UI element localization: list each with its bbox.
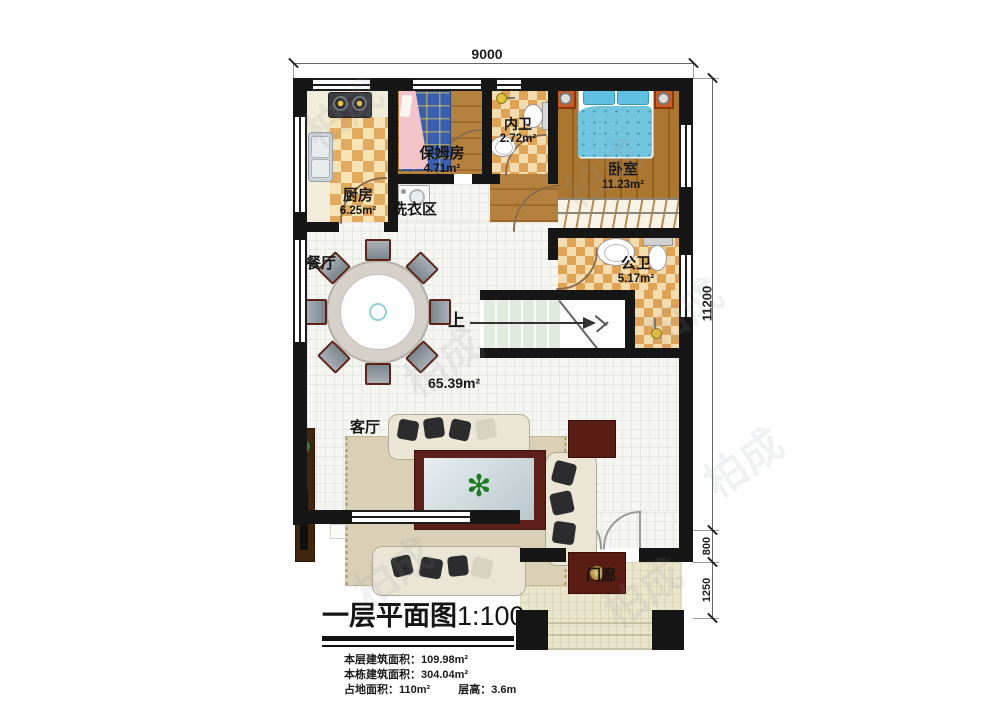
sofa-top-pillow-2 (423, 417, 446, 440)
nanny-room-area: 4.71m² (404, 163, 480, 176)
public-bath-light (651, 328, 662, 339)
stairs-up-label: 上 (448, 311, 465, 330)
kitchen-name: 厨房 (326, 188, 390, 205)
plan-title-scale: 1:100 (457, 601, 525, 631)
title-block: 一层平面图1:100 本层建筑面积：109.98m² 本栋建筑面积：304.04… (322, 594, 525, 698)
stats-lines: 本层建筑面积：109.98m² 本栋建筑面积：304.04m² 占地面积：110… (344, 653, 525, 698)
wall-stairs-top (480, 290, 635, 300)
porch-pillar-right (652, 610, 684, 650)
bedroom-pillow-right (617, 90, 649, 105)
sofa-right-pillow-2 (549, 490, 575, 516)
inner-bath-light (496, 93, 507, 104)
living-label: 客厅 (350, 420, 380, 437)
stairs-arrow-head (583, 317, 596, 329)
stat-floor-area-value: 109.98m² (421, 654, 468, 666)
dining-label: 餐厅 (306, 256, 336, 273)
wall-bath-top (548, 228, 693, 238)
window-nanny-top (413, 78, 481, 91)
wall-kitchen-bottom-b (384, 222, 398, 232)
window-dining-left (293, 240, 307, 342)
sofa-top-pillow-4 (474, 417, 497, 440)
wardrobe-rail (558, 212, 679, 214)
kitchen-sink-basin-2 (311, 159, 330, 178)
wall-porch-right-stub (639, 548, 682, 562)
window-kitchen-top (313, 78, 370, 91)
stove-burner-right (352, 96, 367, 111)
bedroom-name: 卧室 (588, 162, 658, 179)
plan-title-text: 一层平面图 (322, 601, 457, 631)
wall-kitchen-bottom-a (307, 222, 339, 232)
window-publicbath-right (679, 255, 693, 317)
public-bath-floor-lower (635, 290, 679, 348)
sofa-top-pillow-3 (448, 418, 472, 442)
stat-height-label: 层高： (458, 684, 491, 696)
public-bath-label: 公卫 5.17m² (606, 256, 666, 286)
bedroom-duvet (578, 106, 652, 157)
stairs-treads (482, 300, 560, 348)
wall-porch-left-stub (520, 548, 566, 562)
stat-footprint-height: 占地面积：110m²层高：3.6m (344, 683, 525, 698)
coffee-table-plant-icon: ✻ (462, 470, 496, 504)
stat-footprint-value: 110m² (399, 684, 430, 696)
kitchen-area: 6.25m² (326, 205, 390, 218)
side-table-top-right (568, 420, 616, 458)
bedroom-label: 卧室 11.23m² (588, 162, 658, 192)
dining-chair-7 (305, 299, 327, 325)
dimension-top-width: 9000 (437, 46, 537, 62)
public-bath-name: 公卫 (606, 256, 666, 273)
nanny-room-label: 保姆房 4.71m² (404, 146, 480, 176)
sofa-top-pillow-1 (396, 418, 419, 441)
sofa-right-pillow-3 (552, 521, 577, 546)
living-area-label: 65.39m² (428, 376, 480, 392)
dimension-porch-depth: 1250 (701, 573, 713, 607)
stat-floor-area-label: 本层建筑面积： (344, 654, 421, 666)
title-underline-thin (322, 645, 514, 647)
inner-bath-label: 内卫 2.72m² (490, 117, 546, 146)
kitchen-sink-basin-1 (311, 136, 330, 158)
window-bedroom-right (679, 125, 693, 187)
stat-building-area: 本栋建筑面积：304.04m² (344, 668, 525, 683)
dining-chair-1 (365, 239, 391, 261)
plan-title: 一层平面图1:100 (322, 594, 525, 633)
inner-bath-area: 2.72m² (490, 133, 546, 146)
wall-innerbath-bottom-stub (482, 174, 500, 184)
dimension-right-height: 11200 (700, 281, 715, 327)
watermark-7: 柏成 (690, 411, 794, 509)
stairs-arrow-line (470, 322, 583, 324)
stat-building-area-value: 304.04m² (421, 669, 468, 681)
bedroom-area: 11.23m² (588, 179, 658, 192)
stat-building-area-label: 本栋建筑面积： (344, 669, 421, 681)
porch-label: 门廊 (586, 568, 616, 585)
window-living-bottom (352, 510, 470, 524)
laundry-label: 洗衣区 (392, 202, 437, 219)
window-kitchen-left (293, 117, 307, 212)
window-innerbath-top (497, 78, 521, 91)
entry-door-leaf-right (639, 511, 641, 548)
wall-bath-bottom (625, 348, 693, 358)
sofa-bottom-pillow-2 (418, 556, 443, 580)
stat-floor-area: 本层建筑面积：109.98m² (344, 653, 525, 668)
bedroom-pillow-left (583, 90, 615, 105)
nanny-room-name: 保姆房 (404, 146, 480, 163)
stove-burner-left (333, 96, 348, 111)
bedroom-lamp-left (559, 92, 572, 105)
bedroom-lamp-right (657, 92, 670, 105)
sofa-bottom-pillow-3 (447, 555, 469, 577)
dimension-porch-offset: 800 (701, 531, 713, 561)
wall-bath-left-stub (548, 238, 558, 260)
washing-machine-knob (401, 189, 406, 194)
kitchen-label: 厨房 6.25m² (326, 188, 390, 218)
wall-innerbath-right (548, 91, 558, 184)
sofa-bottom-pillow-4 (470, 556, 494, 580)
title-underline-thick (322, 636, 514, 641)
dining-table-center (369, 303, 387, 321)
wall-stairs-bottom (480, 348, 635, 358)
public-bath-area: 5.17m² (606, 273, 666, 286)
floor-plan-canvas: 上 ✻ 厨房 6.25m² 保姆房 4.71m² 内卫 2 (0, 0, 1000, 706)
dining-chair-5 (365, 363, 391, 385)
inner-bath-name: 内卫 (490, 117, 546, 133)
dimension-line-top (293, 63, 693, 64)
stat-footprint-label: 占地面积： (344, 684, 399, 696)
stat-height-value: 3.6m (491, 684, 516, 696)
